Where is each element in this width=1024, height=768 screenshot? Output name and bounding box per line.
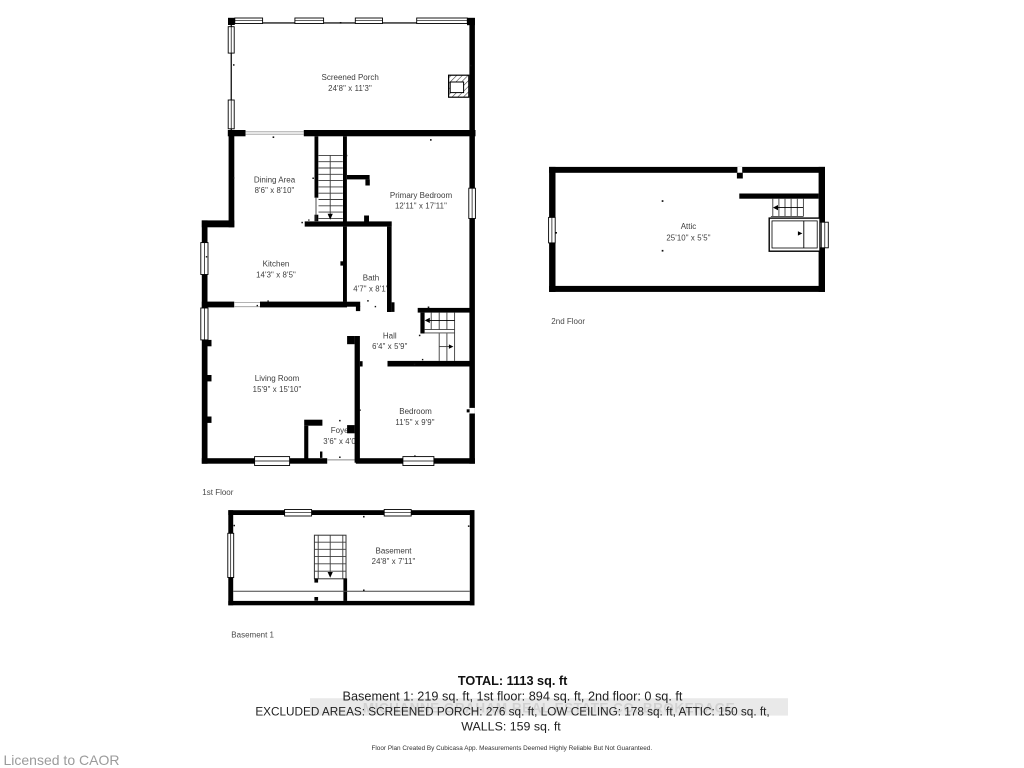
- svg-text:6'4" x 5'9": 6'4" x 5'9": [372, 342, 408, 351]
- svg-text:Screened Porch: Screened Porch: [322, 73, 379, 82]
- svg-text:3'6" x 4'0": 3'6" x 4'0": [323, 437, 359, 446]
- svg-text:4'7" x 8'1": 4'7" x 8'1": [353, 284, 389, 293]
- svg-text:2nd Floor: 2nd Floor: [551, 317, 585, 326]
- svg-text:Dining Area: Dining Area: [254, 175, 296, 184]
- svg-text:Basement 1: 219 sq. ft, 1st fl: Basement 1: 219 sq. ft, 1st floor: 894 s…: [343, 690, 683, 704]
- svg-text:EXCLUDED AREAS: SCREENED PORCH: EXCLUDED AREAS: SCREENED PORCH: 276 sq. …: [255, 705, 769, 718]
- svg-text:Living Room: Living Room: [255, 374, 300, 383]
- svg-text:25'10" x 5'5": 25'10" x 5'5": [666, 234, 710, 243]
- svg-text:15'9" x 15'10": 15'9" x 15'10": [253, 385, 302, 394]
- svg-text:TOTAL: 1113 sq. ft: TOTAL: 1113 sq. ft: [458, 674, 568, 688]
- svg-text:WALLS: 159 sq. ft: WALLS: 159 sq. ft: [461, 720, 561, 734]
- svg-text:Attic: Attic: [681, 222, 697, 231]
- svg-text:Hall: Hall: [383, 331, 397, 340]
- svg-text:8'6" x 8'10": 8'6" x 8'10": [255, 186, 295, 195]
- svg-text:1st Floor: 1st Floor: [202, 488, 233, 497]
- svg-text:Basement 1: Basement 1: [231, 630, 274, 639]
- svg-text:Bedroom: Bedroom: [399, 407, 432, 416]
- svg-text:Bath: Bath: [363, 273, 379, 282]
- svg-text:12'11" x 17'11": 12'11" x 17'11": [395, 202, 447, 211]
- svg-text:14'3" x 8'5": 14'3" x 8'5": [256, 271, 296, 280]
- svg-text:24'8" x 7'11": 24'8" x 7'11": [372, 557, 416, 566]
- svg-text:24'8" x 11'3": 24'8" x 11'3": [328, 84, 372, 93]
- svg-text:Floor Plan Created By Cubicasa: Floor Plan Created By Cubicasa App. Meas…: [371, 745, 652, 752]
- svg-text:11'5" x 9'9": 11'5" x 9'9": [395, 418, 434, 427]
- svg-text:Basement: Basement: [375, 546, 412, 555]
- svg-text:Primary Bedroom: Primary Bedroom: [390, 191, 453, 200]
- svg-text:Licensed to CAOR: Licensed to CAOR: [4, 752, 120, 768]
- svg-text:Kitchen: Kitchen: [263, 259, 290, 268]
